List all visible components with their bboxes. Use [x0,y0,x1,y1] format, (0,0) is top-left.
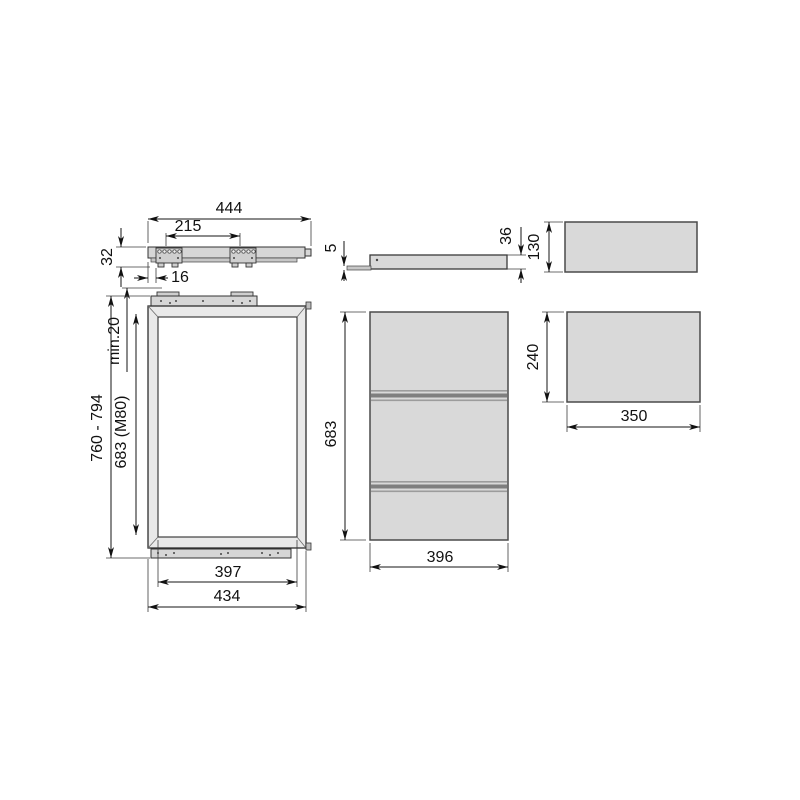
dim-350-label: 350 [621,408,648,425]
frame-hook-tab-top [306,302,311,309]
dim-215-label: 215 [175,218,202,235]
base-plate-edge [347,266,371,270]
top-panel-view: 130 [526,222,697,272]
technical-drawing-page: 444 215 32 16 [0,0,800,800]
dim-396-label: 396 [427,549,454,566]
frame-inner [158,317,297,537]
panel-side-view: 683 396 [323,312,508,572]
dim-240-label: 240 [525,344,542,371]
slide-rail-tip [305,249,311,256]
rail-profile-side [370,255,507,269]
frame-front-view: min.20 760 - 794 683 (M80) 397 434 [89,288,311,612]
dim-16-label: 16 [171,269,189,286]
dim-130-label: 130 [526,234,543,261]
frame-bottom-rail [151,549,291,558]
dim-36-label: 36 [498,227,515,245]
dim-444-label: 444 [216,200,243,217]
panel-side-body [370,312,508,540]
frame-hook-tab-bottom [306,543,311,550]
dim-397-label: 397 [215,564,242,581]
rail-top-view: 444 215 32 16 [99,200,311,287]
front-panel [567,312,700,402]
mounting-bracket-left [156,248,182,267]
rail-side-view: 5 36 [323,227,526,283]
frame-top-rail [151,292,257,306]
dim-434-label: 434 [214,588,241,605]
mounting-bracket-right [230,248,256,267]
dim-683-label: 683 [323,421,340,448]
screw-dot [376,259,378,261]
top-panel [565,222,697,272]
dimension-drawing-canvas: 444 215 32 16 [0,0,800,800]
dim-760-794-label: 760 - 794 [89,394,106,462]
front-panel-view: 240 350 [525,312,700,432]
dim-32-label: 32 [99,248,116,266]
dim-5-label: 5 [323,243,340,252]
dim-683-m80-label: 683 (M80) [113,396,130,469]
dim-min20-label: min.20 [106,317,123,365]
